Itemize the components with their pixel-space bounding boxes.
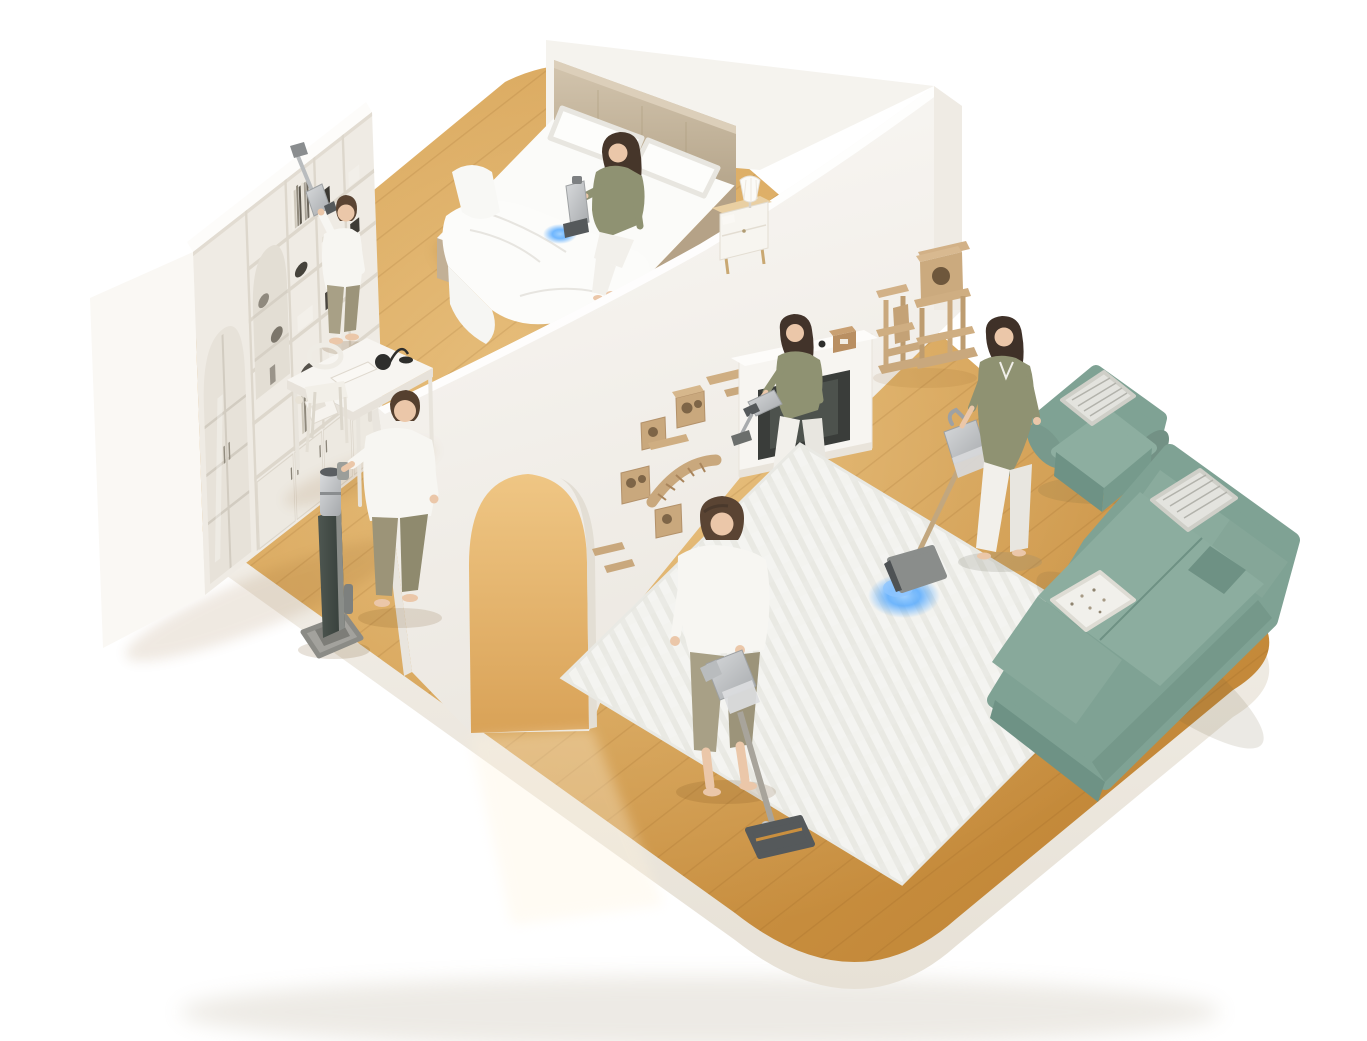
head xyxy=(786,324,804,342)
head xyxy=(995,328,1014,347)
illustration-canvas: Isometric cutaway home illustration with… xyxy=(0,0,1367,1041)
isometric-home-illustration: Isometric cutaway home illustration with… xyxy=(0,0,1367,1041)
shadow xyxy=(358,608,442,628)
camera-on-mantel xyxy=(819,341,826,348)
head xyxy=(338,205,355,222)
head xyxy=(711,513,734,536)
foot xyxy=(703,788,721,797)
head xyxy=(394,400,416,422)
arch-doorway xyxy=(469,474,589,733)
dock-accessory xyxy=(344,584,353,614)
platform-ground-shadow xyxy=(180,976,1220,1041)
shadow xyxy=(958,552,1042,572)
foot xyxy=(374,599,390,607)
head xyxy=(609,144,628,163)
cup xyxy=(295,396,303,404)
foot xyxy=(977,553,991,560)
bookshelf-side-panel xyxy=(90,252,205,648)
torso-shirt xyxy=(363,428,435,521)
